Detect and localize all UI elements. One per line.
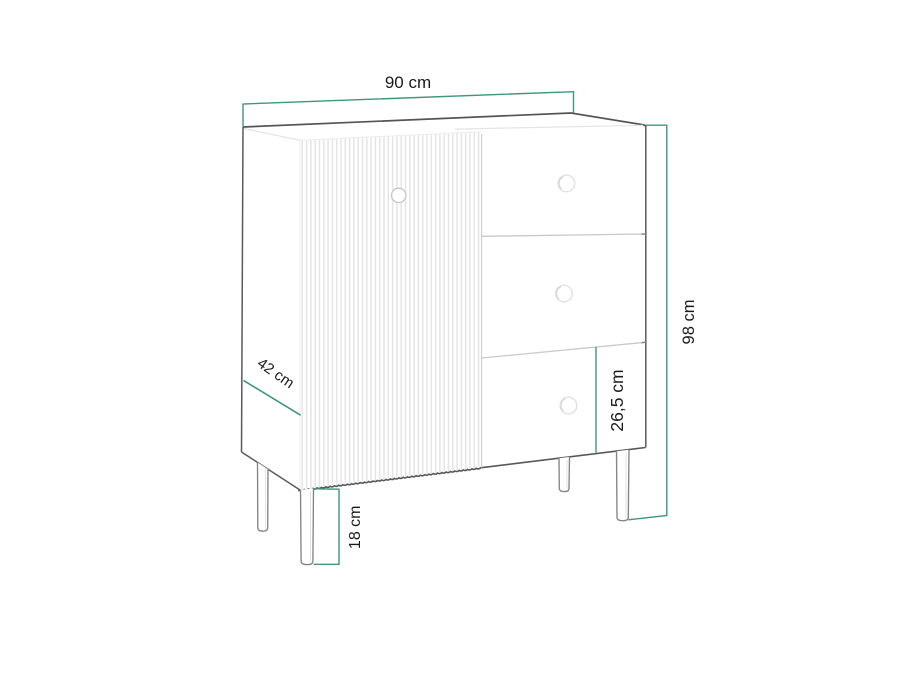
svg-text:26,5 cm: 26,5 cm: [607, 369, 627, 431]
svg-text:98 cm: 98 cm: [680, 300, 698, 345]
svg-text:18 cm: 18 cm: [347, 506, 364, 550]
svg-text:90 cm: 90 cm: [385, 73, 431, 92]
